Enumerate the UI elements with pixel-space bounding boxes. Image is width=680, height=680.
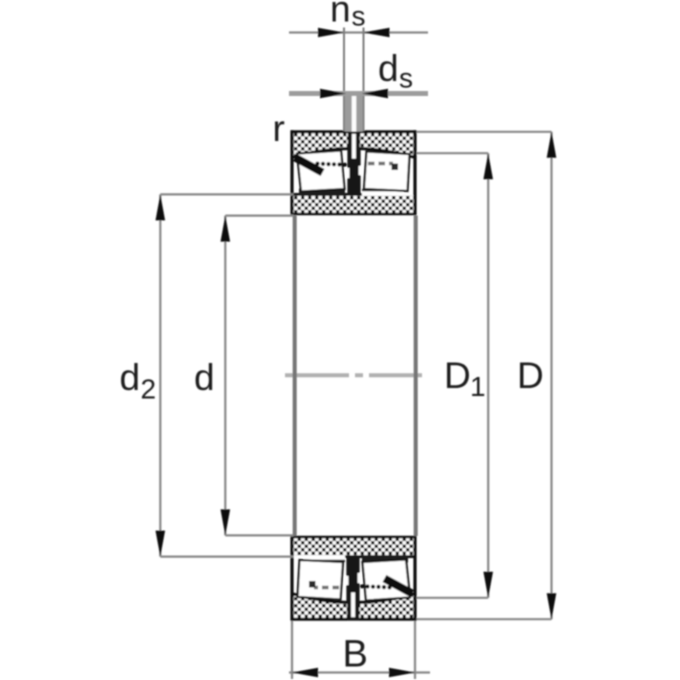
svg-text:d: d — [378, 48, 399, 89]
svg-text:d: d — [120, 357, 141, 398]
svg-text:B: B — [343, 634, 368, 676]
svg-text:D: D — [444, 355, 471, 396]
svg-text:D: D — [517, 355, 544, 396]
svg-text:n: n — [330, 0, 351, 29]
svg-text:s: s — [352, 1, 366, 32]
svg-text:s: s — [399, 63, 413, 94]
svg-text:r: r — [273, 108, 285, 149]
svg-text:2: 2 — [141, 374, 157, 405]
svg-text:d: d — [194, 357, 215, 398]
svg-text:1: 1 — [470, 371, 486, 402]
